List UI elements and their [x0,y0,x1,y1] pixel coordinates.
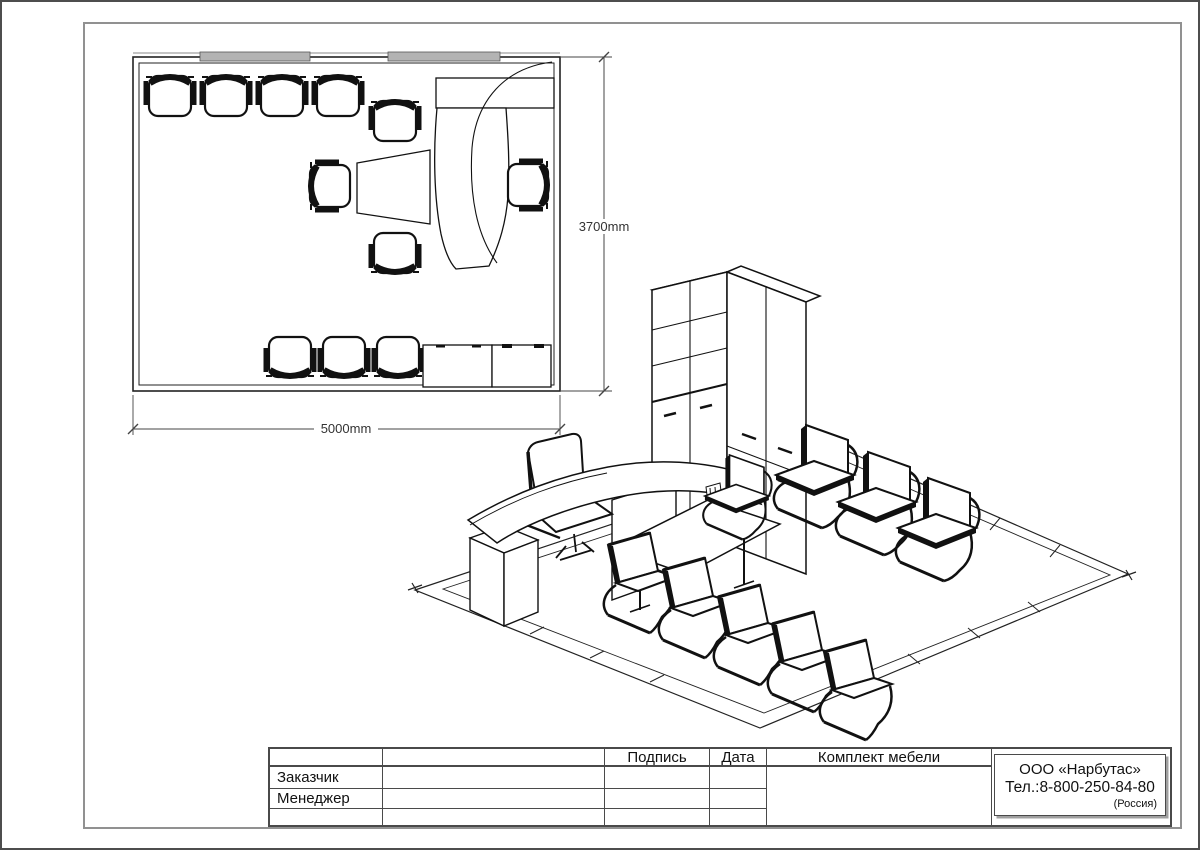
empty-cell [383,809,605,825]
customer-label: Заказчик [270,767,383,789]
manager-date-cell [710,789,767,809]
manager-value-cell [383,789,605,809]
manager-label: Менеджер [270,789,383,809]
empty-cell [270,809,383,825]
company-box: ООО «Нарбутас» Тел.:8-800-250-84-80 (Рос… [994,754,1166,816]
iso-chair [820,640,892,740]
furniture-set-body-cell [767,767,992,825]
plan-chair [144,76,197,116]
title-block: Подпись Дата Комплект мебели ООО «Нарбут… [268,747,1172,827]
iso-chair-row-front [604,533,892,740]
signature-header: Подпись [605,749,710,767]
plan-chair [310,160,350,213]
manager-signature-cell [605,789,710,809]
plan-chair [312,76,365,116]
floor-plan: 3700mm 5000mm [128,52,633,436]
empty-cell [605,809,710,825]
drawing-sheet: { "sheet": { "colors": { "line": "#1a1a1… [0,0,1200,850]
plan-executive-chair [508,159,548,212]
customer-value-cell [383,767,605,789]
plan-conference-table [357,150,430,224]
title-block-cell [270,749,383,767]
plan-chair [256,76,309,116]
company-name: ООО «Нарбутас» [999,761,1161,778]
window-top-right [388,52,500,61]
height-dimension-label: 3700mm [579,219,630,234]
plan-cabinets [423,345,551,387]
plan-chair [200,76,253,116]
plan-chair [369,233,422,273]
plan-chair [369,101,422,141]
iso-view [408,266,1136,740]
date-header: Дата [710,749,767,767]
drawing-canvas: 3700mm 5000mm [0,0,1200,850]
plan-chair [372,337,425,377]
customer-date-cell [710,767,767,789]
plan-chair [318,337,371,377]
furniture-set-header: Комплект мебели [767,749,992,767]
width-dimension-label: 5000mm [321,421,372,436]
company-phone: Тел.:8-800-250-84-80 [999,779,1161,797]
company-country: (Россия) [999,798,1161,810]
iso-pedestal [470,526,538,626]
empty-cell [710,809,767,825]
company-cell: ООО «Нарбутас» Тел.:8-800-250-84-80 (Рос… [992,749,1170,825]
plan-chair [264,337,317,377]
customer-signature-cell [605,767,710,789]
title-block-cell [383,749,605,767]
window-top-left [200,52,310,61]
